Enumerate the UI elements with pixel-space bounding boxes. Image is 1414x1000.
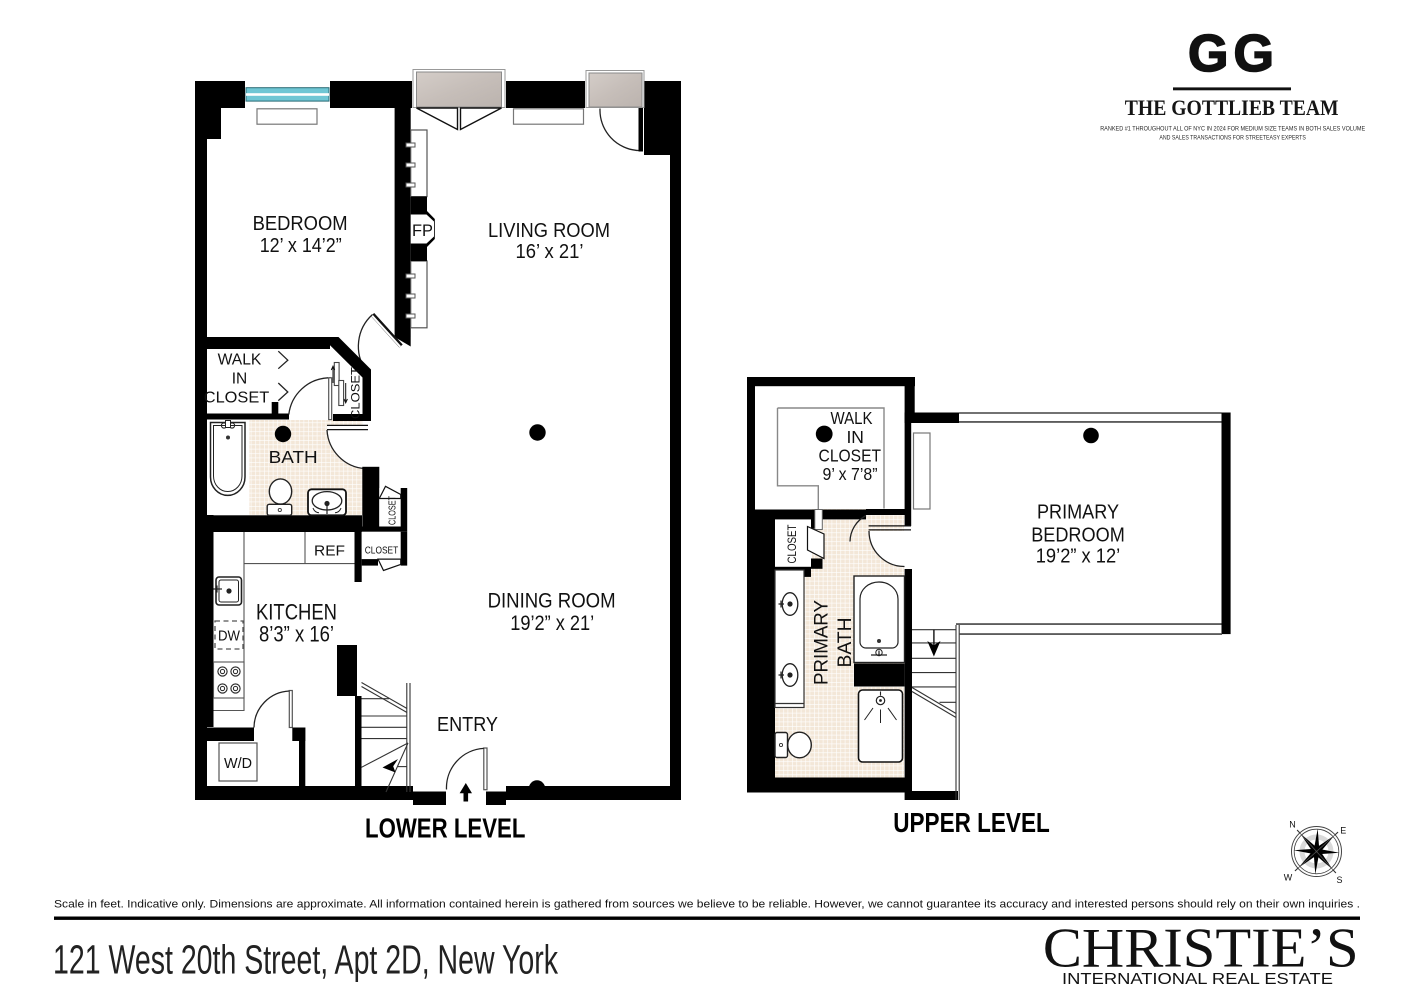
svg-text:CLOSET: CLOSET (204, 390, 270, 407)
svg-text:INTERNATIONAL REAL ESTATE: INTERNATIONAL REAL ESTATE (1062, 971, 1333, 988)
svg-text:IN: IN (846, 427, 864, 447)
svg-text:CLOSET: CLOSET (785, 524, 799, 564)
svg-text:RANKED #1 THROUGHOUT ALL OF NY: RANKED #1 THROUGHOUT ALL OF NYC IN 2024 … (1100, 126, 1365, 133)
svg-text:CLOSET: CLOSET (819, 446, 882, 466)
svg-text:BATH: BATH (269, 447, 318, 467)
svg-text:BEDROOM: BEDROOM (1031, 524, 1125, 547)
svg-text:UPPER LEVEL: UPPER LEVEL (893, 807, 1050, 838)
svg-text:N: N (1289, 820, 1296, 830)
svg-text:W/D: W/D (224, 756, 252, 772)
svg-text:WALK: WALK (831, 408, 873, 428)
svg-text:Scale in feet. Indicative only: Scale in feet. Indicative only. Dimensio… (54, 899, 1360, 911)
svg-text:8’3” x 16’: 8’3” x 16’ (259, 622, 334, 647)
svg-text:19’2” x 12’: 19’2” x 12’ (1036, 545, 1121, 568)
svg-text:E: E (1340, 826, 1346, 836)
svg-text:LOWER LEVEL: LOWER LEVEL (365, 813, 525, 844)
svg-text:PRIMARY: PRIMARY (1037, 500, 1119, 523)
svg-text:S: S (1336, 875, 1342, 885)
svg-text:BATH: BATH (835, 618, 856, 668)
svg-text:THE GOTTLIEB TEAM: THE GOTTLIEB TEAM (1125, 95, 1339, 120)
svg-text:19’2” x 21’: 19’2” x 21’ (510, 611, 594, 635)
svg-text:12’ x 14’2”: 12’ x 14’2” (260, 235, 342, 257)
svg-text:9’ x 7’8”: 9’ x 7’8” (823, 464, 878, 484)
svg-text:121 West 20th Street, Apt 2D,: 121 West 20th Street, Apt 2D, New York (53, 937, 558, 983)
svg-text:REF: REF (314, 543, 345, 560)
svg-text:ENTRY: ENTRY (437, 714, 498, 736)
svg-text:CLOSET: CLOSET (388, 496, 399, 525)
svg-text:CLOSET: CLOSET (365, 545, 399, 557)
svg-text:WALK: WALK (218, 352, 262, 369)
svg-text:16’ x 21’: 16’ x 21’ (516, 241, 584, 263)
svg-text:AND SALES TRANSACTIONS FOR STR: AND SALES TRANSACTIONS FOR STREETEASY EX… (1159, 134, 1306, 141)
svg-text:FP: FP (412, 222, 433, 240)
svg-text:CLOSET: CLOSET (351, 367, 363, 419)
svg-text:DW: DW (218, 629, 240, 645)
svg-text:LIVING ROOM: LIVING ROOM (488, 220, 610, 242)
svg-text:IN: IN (232, 371, 248, 388)
svg-text:DINING ROOM: DINING ROOM (488, 589, 616, 613)
svg-text:W: W (1284, 873, 1293, 883)
svg-text:BEDROOM: BEDROOM (253, 213, 348, 235)
svg-text:PRIMARY: PRIMARY (812, 600, 833, 685)
